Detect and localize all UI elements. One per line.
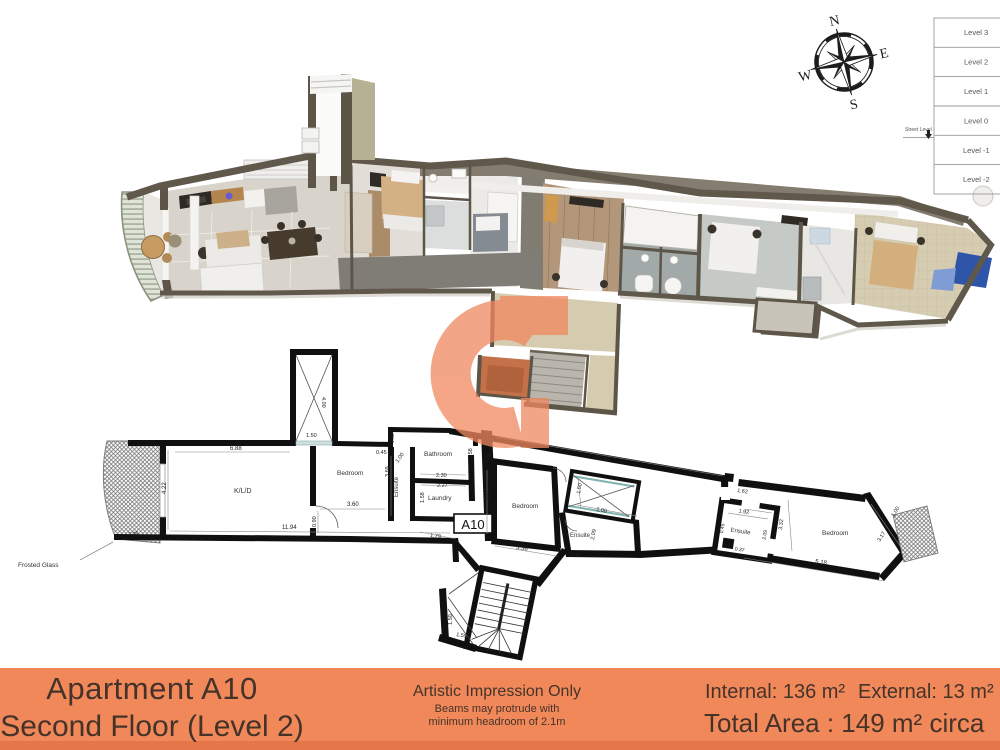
svg-text:Level -2: Level -2 (963, 175, 990, 184)
svg-text:A10: A10 (461, 517, 484, 532)
svg-text:1.50: 1.50 (306, 433, 317, 439)
svg-text:6.88: 6.88 (230, 446, 242, 452)
svg-text:Ensuite: Ensuite (394, 476, 400, 497)
svg-text:minimum headroom of 2.1m: minimum headroom of 2.1m (429, 716, 566, 728)
svg-text:1.58: 1.58 (468, 448, 474, 459)
svg-text:Bathroom: Bathroom (424, 451, 452, 458)
svg-text:0.45: 0.45 (376, 450, 387, 456)
svg-text:3.69: 3.69 (385, 466, 391, 477)
svg-text:Beams may protrude with: Beams may protrude with (435, 703, 560, 715)
svg-text:2.27: 2.27 (437, 483, 448, 489)
svg-text:1.58: 1.58 (420, 492, 426, 503)
svg-text:3.60: 3.60 (347, 502, 359, 508)
svg-text:K/L/D: K/L/D (234, 488, 252, 495)
svg-text:Laundry: Laundry (428, 495, 452, 502)
svg-text:External: 13 m²: External: 13 m² (858, 681, 994, 703)
svg-text:Bedroom: Bedroom (512, 503, 538, 510)
svg-text:Apartment A10: Apartment A10 (46, 671, 258, 706)
svg-text:1.50: 1.50 (448, 614, 454, 625)
svg-text:Level 2: Level 2 (964, 58, 988, 67)
svg-text:2.30: 2.30 (436, 473, 447, 479)
svg-text:11.94: 11.94 (282, 525, 297, 531)
svg-text:Frosted Glass: Frosted Glass (18, 562, 59, 569)
svg-text:4.00: 4.00 (320, 397, 326, 408)
svg-text:3.55: 3.55 (485, 489, 492, 500)
svg-text:Bedroom: Bedroom (337, 470, 363, 477)
svg-text:Internal: 136 m²: Internal: 136 m² (705, 681, 845, 703)
svg-text:Total Area : 149 m² circa: Total Area : 149 m² circa (704, 708, 985, 738)
svg-text:Second Floor (Level 2): Second Floor (Level 2) (0, 710, 304, 743)
svg-text:Level 0: Level 0 (964, 117, 988, 126)
svg-text:Bedroom: Bedroom (822, 530, 848, 537)
svg-text:4.22: 4.22 (162, 482, 168, 494)
svg-text:0.62: 0.62 (390, 433, 396, 443)
svg-text:Level -1: Level -1 (963, 146, 990, 155)
svg-text:Level 1: Level 1 (964, 87, 988, 96)
svg-text:Artistic Impression Only: Artistic Impression Only (413, 683, 581, 700)
svg-text:Level 3: Level 3 (964, 28, 988, 37)
svg-text:0.90: 0.90 (312, 516, 318, 527)
svg-text:Ensuite: Ensuite (570, 533, 591, 539)
